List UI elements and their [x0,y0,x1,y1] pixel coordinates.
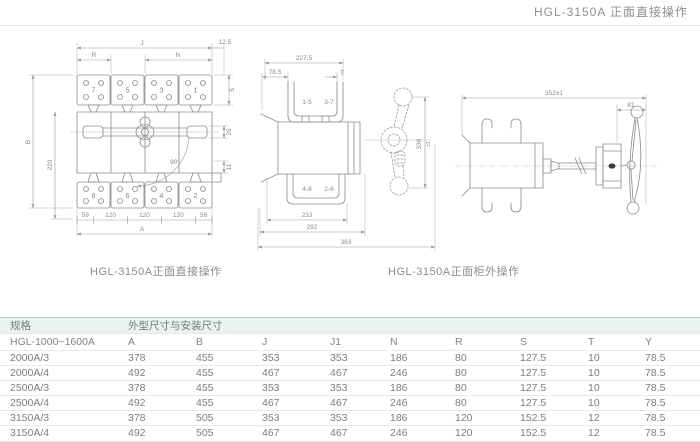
col-N: N [390,336,455,348]
extension-lines [258,59,435,251]
value-cell: 492 [128,427,196,439]
terminal-shroud-top [288,82,343,122]
value-cell: 152.5 [520,427,588,439]
table-group-header: 规格 外型尺寸与安装尺寸 [0,318,700,334]
value-cell: 186 [390,352,455,364]
value-cell: 246 [390,427,455,439]
dim-label-A: A [140,226,145,233]
pole-pair-label: 4-8 [302,186,312,193]
dims-header: 外型尺寸与安装尺寸 [128,318,223,333]
value-cell: 80 [455,367,520,379]
value-cell: 10 [588,397,645,409]
dim-label-363: 363 [341,239,352,246]
value-cell: 80 [455,352,520,364]
terminal-number: 3 [160,88,164,95]
value-cell: 467 [330,427,390,439]
value-cell: 378 [128,382,196,394]
extension-shaft [543,158,596,174]
col-B: B [196,336,262,348]
top-divider [0,25,700,26]
extension-lines [462,94,646,204]
dim-label-227-5: 227.5 [296,55,313,62]
terminal-number: 8 [92,193,96,200]
value-cell: 353 [262,382,330,394]
terminal-number: 2 [194,193,198,200]
spec-cell: 2500A/3 [10,382,128,394]
handwheel [621,106,643,214]
spec-cell: 2000A/3 [10,352,128,364]
col-J1: J1 [330,336,390,348]
value-cell: 186 [390,382,455,394]
dim-label-120-1: 120 [105,212,116,219]
value-cell: 353 [330,412,390,424]
dim-label-352: 352±1 [545,90,563,97]
dim-label-11: 11 [226,163,233,170]
value-cell: 353 [262,352,330,364]
value-cell: 78.5 [645,382,700,394]
dim-label-120-2: 120 [139,212,150,219]
dim-label-220: 220 [47,159,54,170]
value-cell: 467 [330,397,390,409]
pole-pair-label: 2-6 [324,186,334,193]
page-title: HGL-3150A 正面直接操作 [534,3,688,20]
value-cell: 78.5 [645,352,700,364]
value-cell: 127.5 [520,397,588,409]
terminal-blocks-top [77,75,212,112]
dimension-lines [258,63,435,247]
value-cell: 10 [588,382,645,394]
dim-label-59-left: 59 [82,212,90,219]
col-S: S [520,336,588,348]
pole-pair-label: 3-7 [324,99,334,106]
value-cell: 152.5 [520,412,588,424]
value-cell: 455 [196,397,262,409]
col-J: J [262,336,330,348]
value-cell: 505 [196,427,262,439]
operating-handle [70,117,219,186]
value-cell: 186 [390,412,455,424]
value-cell: 127.5 [520,367,588,379]
terminal-number: 4 [160,193,164,200]
terminal-number: 6 [126,193,130,200]
value-cell: 78.5 [645,412,700,424]
table-row: 2500A/4 492 455 467 467 246 80 127.5 10 … [0,395,700,410]
dim-label-81: 81 [627,102,635,109]
value-cell: 467 [262,397,330,409]
col-A: A [128,336,196,348]
front-cabinet-drawing: 227.5 78.5 T 330 ±1 233 292 363 1-5 3-7 [253,48,438,253]
value-cell: 78.5 [645,427,700,439]
terminal-number: 1 [194,88,198,95]
dim-label-S: S [229,87,236,92]
dim-label-T: T [340,70,344,77]
spec-cell: 2500A/4 [10,397,128,409]
dim-label-N: N [176,52,181,59]
dim-label-12-5: 12.5 [219,39,232,46]
value-cell: 80 [455,397,520,409]
value-cell: 246 [390,367,455,379]
spec-header: 规格 [10,318,128,333]
dim-label-120-3: 120 [173,212,184,219]
value-cell: 120 [455,427,520,439]
dim-label-J: J [140,40,143,47]
pole-pair-label: 1-5 [302,99,312,106]
switch-body-profile [462,119,543,212]
value-cell: 378 [128,412,196,424]
col-T: T [588,336,645,348]
dimension-lines [462,98,646,110]
dim-label-59-right: 59 [200,212,208,219]
col-Y: Y [645,336,700,348]
spec-cell: 3150A/3 [10,412,128,424]
value-cell: 127.5 [520,352,588,364]
dim-label-292: 292 [307,224,318,231]
table-row: 3150A/4 492 505 467 467 246 120 152.5 12… [0,425,700,440]
value-cell: 127.5 [520,382,588,394]
value-cell: 10 [588,367,645,379]
terminal-blocks-bottom [77,173,212,208]
value-cell: 12 [588,412,645,424]
terminal-shroud-bottom [287,174,345,204]
spec-cell: 3150A/4 [10,427,128,439]
terminal-number: 5 [126,88,130,95]
value-cell: 12 [588,427,645,439]
value-cell: 455 [196,352,262,364]
value-cell: 353 [330,352,390,364]
value-cell: 455 [196,382,262,394]
value-cell: 492 [128,397,196,409]
value-cell: 78.5 [645,367,700,379]
value-cell: 378 [128,352,196,364]
base-model-label: HGL-1000~1600A [10,336,128,348]
dimension-table: 规格 外型尺寸与安装尺寸 HGL-1000~1600A A B J J1 N R… [0,317,700,442]
value-cell: 120 [455,412,520,424]
table-column-header-row: HGL-1000~1600A A B J J1 N R S T Y [0,334,700,350]
dim-label-B: B [25,140,32,144]
table-row: 2500A/3 378 455 353 353 186 80 127.5 10 … [0,380,700,395]
front-direct-drawing: J 12.5 R N S B 220 26 11 90° 59 120 120 … [25,34,240,246]
table-row: 2000A/4 492 455 467 467 246 80 127.5 10 … [0,365,700,380]
caption-front-direct: HGL-3150A正面直接操作 [90,263,222,279]
dim-label-R: R [92,52,97,59]
caption-side-external: HGL-3150A正面柜外操作 [388,263,520,279]
value-cell: 467 [262,427,330,439]
value-cell: 80 [455,382,520,394]
dim-label-78-5: 78.5 [269,69,282,76]
spec-cell: 2000A/4 [10,367,128,379]
value-cell: 78.5 [645,397,700,409]
value-cell: 505 [196,412,262,424]
dim-label-26: 26 [226,128,233,136]
value-cell: 246 [390,397,455,409]
handle-silhouette [381,88,412,195]
col-R: R [455,336,520,348]
dim-label-233: 233 [302,212,313,219]
value-cell: 492 [128,367,196,379]
catalog-page: HGL-3150A 正面直接操作 [0,0,700,442]
table-row: 2000A/3 378 455 353 353 186 80 127.5 10 … [0,350,700,365]
value-cell: 467 [262,367,330,379]
value-cell: 467 [330,367,390,379]
terminal-number: 7 [92,88,96,95]
value-cell: 10 [588,352,645,364]
value-cell: 455 [196,367,262,379]
table-row: 3150A/3 378 505 353 353 186 120 152.5 12… [0,410,700,425]
switch-body [77,112,221,182]
side-external-drawing: 352±1 81 [430,84,698,234]
dimension-lines [33,48,229,234]
value-cell: 353 [330,382,390,394]
switch-body-side [261,114,360,182]
value-cell: 353 [262,412,330,424]
